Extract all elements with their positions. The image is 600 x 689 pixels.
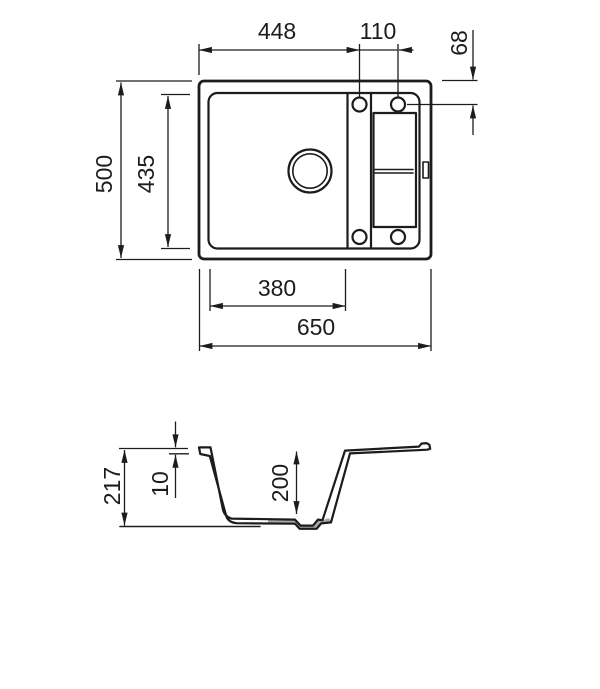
dimension-448: 448 [199, 18, 360, 75]
dim-10-label: 10 [147, 471, 173, 497]
dimension-10: 10 [147, 422, 189, 499]
dimension-217: 217 [99, 449, 188, 526]
dimension-68: 68 [407, 30, 478, 135]
dim-200-label: 200 [267, 464, 293, 502]
dim-380-label: 380 [258, 275, 296, 301]
drain-circle-outer [289, 150, 332, 193]
dim-448-label: 448 [258, 18, 296, 44]
dim-500-label: 500 [91, 155, 117, 193]
dimension-435: 435 [133, 95, 190, 249]
sink-dimension-drawing: 448 110 68 [0, 0, 600, 689]
dim-650-label: 650 [297, 314, 335, 340]
side-section-view: 217 10 200 [99, 422, 430, 530]
dimension-380: 380 [210, 269, 346, 311]
mounting-hole-top-left [353, 98, 367, 112]
overflow-tab [423, 162, 429, 178]
drain-circle-inner [293, 154, 327, 188]
sink-recess-outline [209, 93, 420, 249]
drawing-sheet: 448 110 68 [0, 0, 600, 689]
dimension-200: 200 [267, 452, 297, 515]
dim-110-label: 110 [360, 18, 397, 44]
dimension-110: 110 [360, 18, 414, 97]
dim-435-label: 435 [133, 155, 159, 193]
top-view: 448 110 68 [91, 18, 478, 351]
section-profile-outline [199, 443, 430, 529]
dimension-650: 650 [200, 269, 432, 351]
mounting-hole-top-right [391, 98, 405, 112]
mounting-hole-bottom-left [353, 230, 367, 244]
mounting-hole-bottom-right [391, 230, 405, 244]
dim-217-label: 217 [99, 467, 125, 505]
dim-68-label: 68 [446, 30, 472, 56]
